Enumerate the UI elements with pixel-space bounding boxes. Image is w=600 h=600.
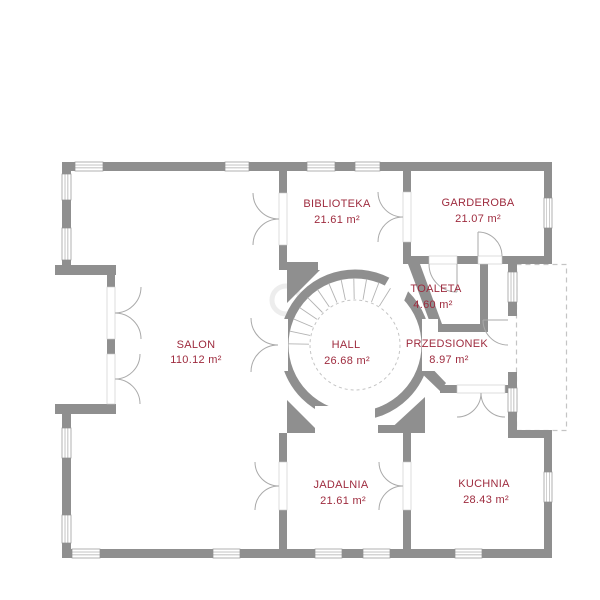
room-name-salon: SALON — [177, 339, 216, 351]
room-area-biblioteka: 21.61 m² — [314, 214, 360, 226]
door-arc — [115, 287, 141, 313]
door-arc — [255, 486, 279, 510]
room-area-przedsionek: 8.97 m² — [429, 354, 468, 366]
room-area-kuchnia: 28.43 m² — [463, 494, 509, 506]
door-arc — [481, 393, 505, 417]
window — [315, 549, 342, 558]
window — [62, 174, 71, 200]
door-arc — [378, 217, 403, 242]
room-area-toaleta: 4.60 m² — [413, 299, 452, 311]
window — [508, 272, 517, 302]
terrace-dashed-outline — [517, 265, 567, 431]
door-arc — [378, 192, 403, 217]
door-arc — [379, 486, 403, 510]
window — [355, 162, 380, 171]
room-name-przedsionek: PRZEDSIONEK — [406, 338, 489, 350]
room-name-jadalnia: JADALNIA — [314, 479, 369, 491]
door-arc — [253, 193, 279, 219]
window — [225, 162, 249, 171]
door-arc — [253, 219, 279, 245]
door-arc — [478, 232, 502, 256]
window — [62, 428, 71, 458]
room-name-toaleta: TOALETA — [410, 283, 462, 295]
door-arc — [457, 393, 481, 417]
window — [544, 198, 552, 228]
door-arc — [115, 354, 140, 379]
window — [508, 388, 517, 412]
room-area-hall: 26.68 m² — [324, 355, 370, 367]
door-arc — [115, 379, 140, 404]
window — [72, 549, 100, 558]
door-arc — [379, 462, 403, 486]
room-area-jadalnia: 21.61 m² — [320, 495, 366, 507]
window — [62, 515, 71, 543]
door-arc — [255, 462, 279, 486]
window — [307, 162, 335, 171]
window — [544, 472, 552, 502]
window — [363, 549, 390, 558]
door-arc — [115, 313, 141, 339]
window — [213, 549, 240, 558]
window — [62, 228, 71, 260]
room-name-hall: HALL — [332, 339, 361, 351]
window — [75, 162, 103, 171]
floor-plan-drawing: SALON 110.12 m² BIBLIOTEKA 21.61 m² GARD… — [0, 0, 600, 600]
room-area-garderoba: 21.07 m² — [455, 213, 501, 225]
floor-plan-page: SALON 110.12 m² BIBLIOTEKA 21.61 m² GARD… — [0, 0, 600, 600]
room-name-garderoba: GARDEROBA — [442, 197, 515, 209]
wall-alcove-bottom — [55, 404, 116, 414]
room-name-biblioteka: BIBLIOTEKA — [303, 198, 371, 210]
room-area-salon: 110.12 m² — [170, 354, 221, 366]
window — [455, 549, 482, 558]
room-name-kuchnia: KUCHNIA — [458, 478, 510, 490]
wall-alcove-top — [55, 265, 116, 275]
